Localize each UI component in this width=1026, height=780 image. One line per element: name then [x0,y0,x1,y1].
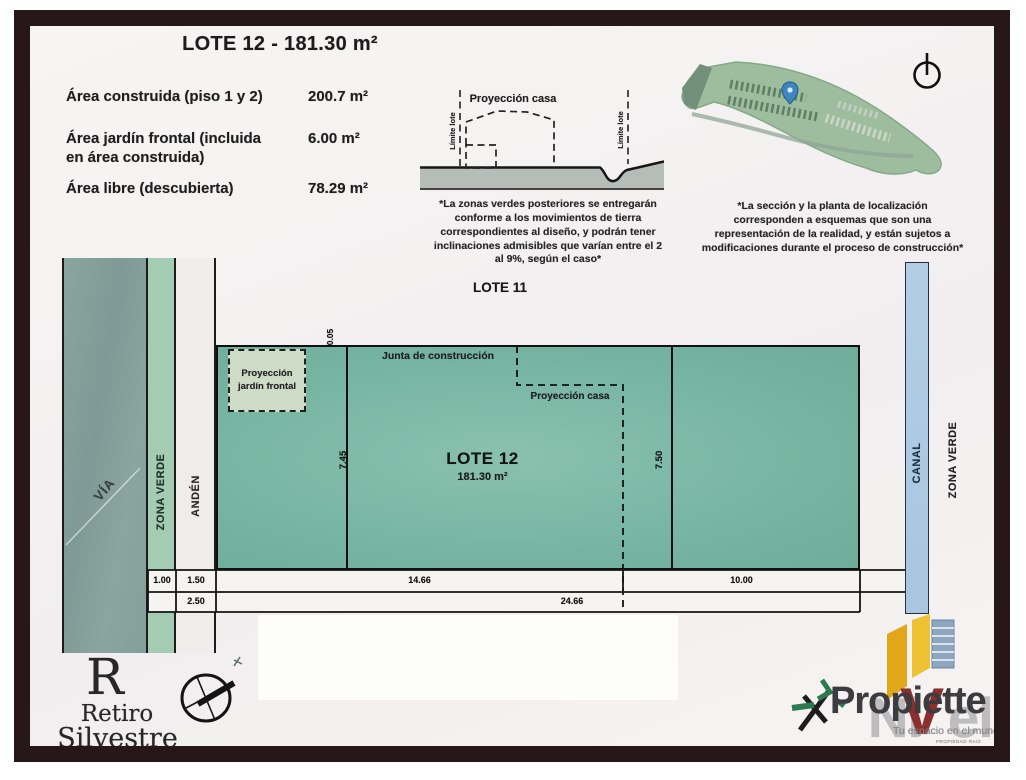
dim-7-50: 7.50 [654,430,666,490]
dim-7-45: 7.45 [338,430,350,490]
zona-verde-left-label: ZONA VERDE [154,447,168,537]
scanned-plan-page: LOTE 12 - 181.30 m² Área construida (pis… [0,0,1026,780]
lote12-title: LOTE 12 [400,449,565,469]
dim-1-50: 1.50 [176,575,216,585]
propiette-subtext: PROPIEDAD RAIZ [936,739,981,744]
area-row-value: 200.7 m² [308,88,368,105]
lote12-area: 181.30 m² [400,471,565,483]
retiro-name-line2: Silvestre [40,723,195,754]
junta-label: Junta de construcción [382,350,494,362]
zona-verde-right-label: ZONA VERDE [946,415,960,505]
dim-2-50: 2.50 [176,596,216,606]
retiro-monogram: R [55,650,155,704]
north-arrow-icon [905,48,949,92]
house-outline [466,111,554,168]
section-casa-label: Proyección casa [470,93,558,105]
propiette-tagline: Tu espacio en el mundo [893,725,1005,737]
propiette-name: Propiette [830,682,986,720]
location-note: *La sección y la planta de localización … [685,200,980,255]
section-note: *La zonas verdes posteriores se entregar… [408,198,688,267]
area-row-label: Área construida (piso 1 y 2) [66,88,306,107]
jardin-frontal-projection: Proyección jardín frontal [228,349,306,412]
limite-lote-label: Límite lote [448,112,457,150]
dim-14-66: 14.66 [216,575,623,585]
yellow-fold-right [912,614,930,678]
dim-10-00: 10.00 [623,575,860,585]
anden-label: ANDÉN [189,451,203,541]
compass-icon [178,670,238,726]
dim-1-00: 1.00 [148,575,176,585]
dim-24-66: 24.66 [250,596,894,606]
lote11-label: LOTE 11 [440,280,560,295]
section-diagram: Proyección casa Límite lote Límite lote [420,86,664,194]
house-inner-box [466,145,496,168]
area-row-label: Área jardín frontal (incluida en área co… [66,130,306,168]
retiro-tagline: EL ESTADO PURO DE LA VIDA [40,755,195,761]
page-title: LOTE 12 - 181.30 m² [160,33,400,56]
blank-cover [258,615,678,700]
plan-casa-label: Proyección casa [520,391,620,402]
via-strip [62,258,148,653]
ground-band [420,162,664,190]
area-row-label: Área libre (descubierta) [66,180,306,199]
limite-lote-label: Límite lote [616,111,625,149]
dim-0-05: 0.05 [324,317,336,357]
jardin-frontal-label: Proyección jardín frontal [238,368,296,393]
canal-label: CANAL [910,418,924,508]
area-row-value: 6.00 m² [308,130,360,147]
area-row-value: 78.29 m² [308,180,368,197]
area-table: Área construida (piso 1 y 2) 200.7 m² Ár… [66,88,386,228]
